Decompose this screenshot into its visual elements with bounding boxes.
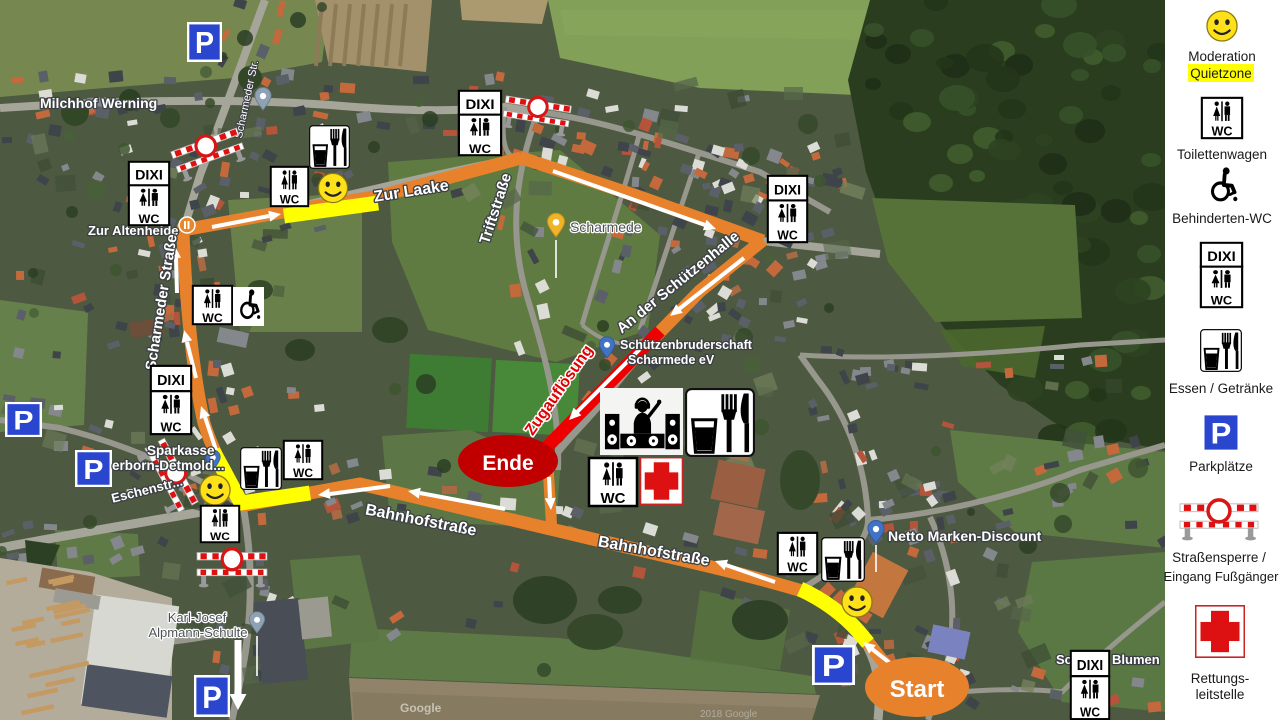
svg-text:Moderation: Moderation [1188,49,1256,64]
svg-text:Straßensperre /: Straßensperre / [1172,550,1266,565]
svg-text:Eingang Fußgänger: Eingang Fußgänger [1164,569,1280,584]
svg-text:leitstelle: leitstelle [1196,687,1245,702]
svg-text:Rettungs-: Rettungs- [1191,671,1250,686]
svg-text:Scharmede eV: Scharmede eV [628,353,715,367]
svg-text:Karl-Josef: Karl-Josef [168,610,227,625]
svg-text:Scharmede: Scharmede [570,219,642,235]
svg-text:Ende: Ende [482,452,533,475]
svg-text:Alpmann-Schulte: Alpmann-Schulte [149,625,248,640]
svg-text:Netto Marken-Discount: Netto Marken-Discount [888,528,1042,544]
svg-text:Sparkasse: Sparkasse [147,443,215,458]
svg-text:Essen / Getränke: Essen / Getränke [1169,381,1273,396]
svg-text:Google: Google [400,701,442,715]
svg-text:Toilettenwagen: Toilettenwagen [1177,147,1267,162]
svg-text:Start: Start [890,676,945,703]
svg-text:Parkplätze: Parkplätze [1189,459,1253,474]
svg-text:Behinderten-WC: Behinderten-WC [1172,211,1272,226]
svg-text:2018 Google: 2018 Google [700,709,758,720]
svg-text:erborn-Detmold...: erborn-Detmold... [112,458,225,473]
svg-text:Milchhof Werning: Milchhof Werning [40,95,157,111]
svg-text:Quietzone: Quietzone [1190,66,1252,81]
svg-text:Schützenbruderschaft: Schützenbruderschaft [620,338,753,352]
svg-text:Blumen: Blumen [1112,652,1160,667]
